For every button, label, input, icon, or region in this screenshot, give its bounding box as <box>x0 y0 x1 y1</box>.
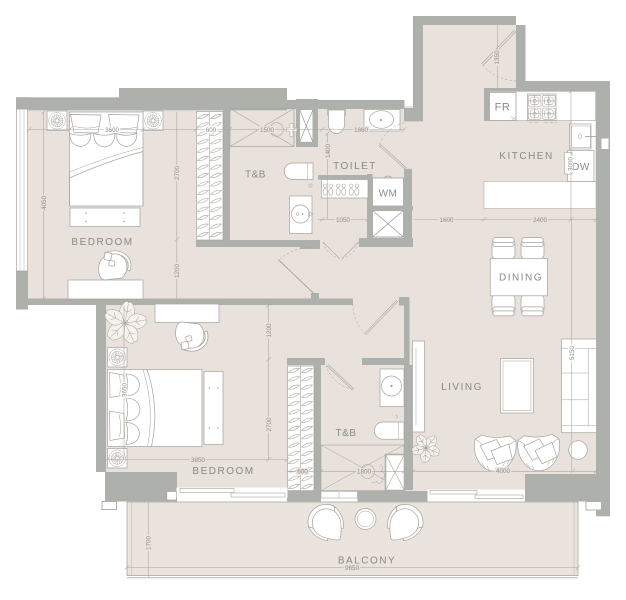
svg-text:1350: 1350 <box>494 50 501 65</box>
svg-text:KITCHEN: KITCHEN <box>499 151 553 162</box>
svg-text:600: 600 <box>206 127 217 134</box>
svg-text:1400: 1400 <box>325 144 332 159</box>
svg-text:1800: 1800 <box>357 469 372 476</box>
svg-text:DW: DW <box>572 162 590 173</box>
svg-text:BEDROOM: BEDROOM <box>192 466 254 477</box>
svg-text:1200: 1200 <box>174 264 181 279</box>
svg-text:2700: 2700 <box>174 166 181 181</box>
svg-text:5150: 5150 <box>569 346 576 361</box>
svg-text:1200: 1200 <box>266 323 273 338</box>
svg-text:1860: 1860 <box>354 127 369 134</box>
svg-text:BEDROOM: BEDROOM <box>71 237 133 248</box>
svg-text:2400: 2400 <box>533 217 548 224</box>
svg-text:1600: 1600 <box>439 217 454 224</box>
svg-text:LIVING: LIVING <box>441 382 483 393</box>
svg-text:WM: WM <box>379 189 398 200</box>
svg-text:3650: 3650 <box>121 383 128 398</box>
svg-text:1700: 1700 <box>146 536 153 551</box>
svg-text:1500: 1500 <box>260 127 275 134</box>
svg-text:600: 600 <box>297 469 308 476</box>
svg-text:1050: 1050 <box>336 217 351 224</box>
svg-text:T&B: T&B <box>245 170 266 181</box>
svg-text:BALCONY: BALCONY <box>338 556 396 567</box>
svg-text:TOILET: TOILET <box>333 161 377 172</box>
svg-text:3850: 3850 <box>191 457 206 464</box>
svg-text:4050: 4050 <box>41 196 48 211</box>
svg-text:DINING: DINING <box>499 273 543 284</box>
svg-text:3000: 3000 <box>567 157 574 172</box>
svg-text:4000: 4000 <box>496 468 511 475</box>
svg-text:2700: 2700 <box>266 417 273 432</box>
svg-text:T&B: T&B <box>336 428 357 439</box>
svg-text:FR: FR <box>495 102 511 114</box>
svg-text:3600: 3600 <box>105 127 120 134</box>
